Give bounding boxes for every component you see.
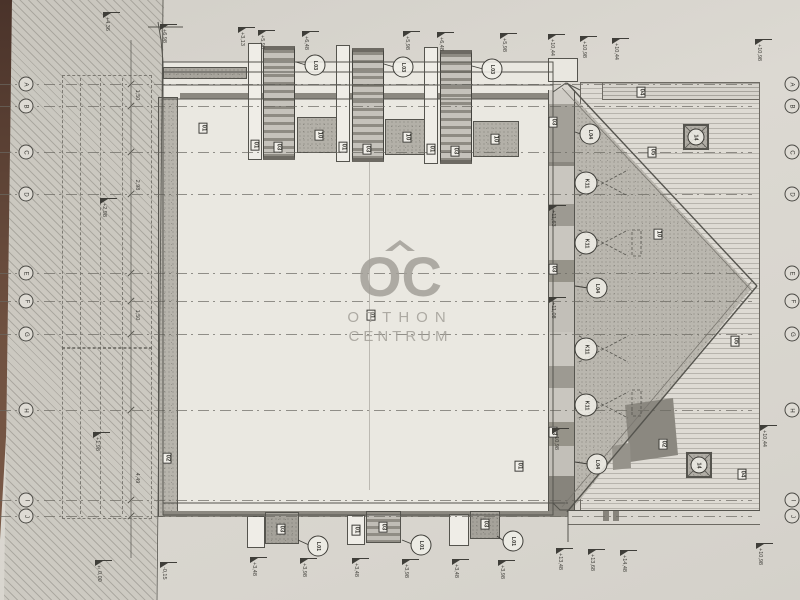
elevation-mark: +10,44 [612, 38, 630, 50]
grid-letter: H [23, 408, 29, 412]
tag-box-03: 03 [274, 142, 283, 153]
elevation-value: +10,98 [757, 548, 763, 565]
tag-box-01: 01 [515, 461, 524, 472]
grid-letter: B [23, 104, 29, 108]
elevation-value: +3,48 [353, 563, 359, 577]
tag-box-10: 10 [491, 134, 500, 145]
grid-bubble: B [785, 99, 800, 114]
tag-box-05: 05 [648, 147, 657, 158]
tag-box-01: 01 [251, 140, 260, 151]
elevation-mark: +11,08 [549, 297, 567, 309]
elevation-mark: +10,98 [756, 543, 774, 555]
tag-box-10: 10 [403, 132, 412, 143]
grid-letter: J [23, 515, 29, 518]
elevation-value: +6,48 [303, 36, 309, 50]
grid-letter: C [789, 150, 795, 154]
tag-circle-L04: L04 [580, 124, 601, 145]
elevation-value: +10,98 [553, 433, 559, 450]
elevation-mark: +4,36 [103, 12, 121, 24]
tag-box-01: 01 [199, 123, 208, 134]
elevation-value: +10,44 [549, 39, 555, 56]
grid-letter: H [789, 408, 795, 412]
tag-box-04: 04 [637, 87, 646, 98]
grid-bubble: E [785, 266, 800, 281]
tag-box-03: 03 [481, 519, 490, 530]
grid-bubble: H [19, 403, 34, 418]
grid-bubble: J [19, 509, 34, 524]
dim-text: 1,50 [134, 90, 140, 101]
elevation-mark: +3,48 [250, 557, 268, 569]
tag-circle-L01: L01 [503, 531, 524, 552]
elevation-mark: ±0,00 [95, 560, 113, 572]
tag-box-03: 03 [549, 264, 558, 275]
tag-text: L04 [594, 283, 600, 292]
grid-letter: B [789, 104, 795, 108]
elevation-value: +11,63 [550, 210, 556, 227]
elevation-value: +10,44 [761, 430, 767, 447]
tag-text: 14 [696, 462, 702, 468]
elevation-value: +5,98 [259, 35, 265, 49]
elevation-value: +11,08 [550, 302, 556, 319]
tag-box-10: 10 [654, 229, 663, 240]
tag-box-03: 03 [549, 117, 558, 128]
grid-bubble: I [19, 493, 34, 508]
tag-text: L03 [400, 62, 406, 71]
grid-letter: G [23, 332, 29, 337]
tag-box-02: 02 [163, 453, 172, 464]
tag-text: L01 [510, 536, 516, 545]
tag-box-01: 01 [339, 142, 348, 153]
floorplan-photo: AABBCCDDEEFFGGHHIIJJ01010310010310010310… [0, 0, 800, 600]
tag-box-03: 03 [363, 144, 372, 155]
tag-circle-14: 14 [688, 129, 705, 146]
tag-circle-L04: L04 [587, 278, 608, 299]
tag-box-01: 01 [427, 144, 436, 155]
grid-bubble: C [19, 145, 34, 160]
grid-letter: A [23, 82, 29, 86]
grid-bubble: H [785, 403, 800, 418]
grid-bubble: E [19, 266, 34, 281]
elevation-mark: +10,98 [580, 36, 598, 48]
elevation-value: +3,98 [301, 563, 307, 577]
elevation-mark: +3,98 [300, 558, 318, 570]
elevation-value: +10,98 [756, 44, 762, 61]
elevation-mark: +10,44 [760, 425, 778, 437]
tag-circle-K11: K11 [575, 338, 598, 361]
tag-text: L03 [312, 60, 318, 69]
elevation-value: +10,98 [581, 41, 587, 58]
elevation-value: +2,98 [101, 203, 107, 217]
elevation-value: +14,48 [621, 555, 627, 572]
elevation-value: +6,98 [161, 29, 167, 43]
elevation-mark: +6,48 [437, 32, 455, 44]
grid-bubble: B [19, 99, 34, 114]
elevation-mark: +10,98 [552, 428, 570, 440]
elevation-value: ±0,00 [96, 565, 102, 582]
tag-text: K11 [583, 178, 589, 188]
tag-text: 14 [693, 134, 699, 140]
grid-letter: I [23, 499, 29, 501]
grid-bubble: F [19, 294, 34, 309]
grid-bubble: G [785, 327, 800, 342]
tag-box-03: 03 [451, 146, 460, 157]
elevation-value: +4,36 [104, 17, 110, 31]
dim-text: 4,49 [134, 473, 140, 484]
elevation-mark: +1,98 [93, 432, 111, 444]
tag-circle-L03: L03 [393, 57, 414, 78]
grid-bubble: G [19, 327, 34, 342]
elevation-value: +13,48 [557, 553, 563, 570]
tag-box-01: 01 [352, 525, 361, 536]
elevation-value: +3,48 [453, 564, 459, 578]
grid-bubble: D [19, 187, 34, 202]
grid-bubble: A [785, 77, 800, 92]
tag-box-03: 03 [379, 522, 388, 533]
grid-bubble: D [785, 187, 800, 202]
tag-box-05: 05 [731, 336, 740, 347]
elevation-value: +5,98 [404, 36, 410, 50]
elevation-value: +3,13 [239, 32, 245, 46]
tag-text: L01 [418, 540, 424, 549]
dim-text: 2,98 [134, 180, 140, 191]
elevation-value: +13,68 [589, 554, 595, 571]
elevation-mark: +5,98 [403, 31, 421, 43]
grid-bubble: F [785, 294, 800, 309]
elevation-mark: +6,48 [302, 31, 320, 43]
grid-letter: A [789, 82, 795, 86]
grid-letter: F [23, 299, 29, 303]
tag-text: L01 [315, 541, 321, 550]
grid-letter: D [789, 192, 795, 196]
watermark-line2: CENTRUM [330, 328, 470, 345]
elevation-mark: +6,98 [160, 24, 178, 36]
grid-bubble: J [785, 509, 800, 524]
grid-letter: J [789, 515, 795, 518]
tag-circle-L03: L03 [482, 59, 503, 80]
elevation-value: +3,48 [251, 562, 257, 576]
elevation-mark: +3,98 [402, 559, 420, 571]
grid-letter: C [23, 150, 29, 154]
elevation-value: +5,98 [501, 38, 507, 52]
tag-circle-14: 14 [691, 457, 708, 474]
elevation-value: +3,98 [499, 565, 505, 579]
elevation-mark: +13,68 [588, 549, 606, 561]
tag-box-10: 10 [315, 130, 324, 141]
tag-box-02: 02 [659, 439, 668, 450]
elevation-mark: +3,98 [498, 560, 516, 572]
tag-text: L04 [587, 129, 593, 138]
elevation-mark: +10,44 [548, 34, 566, 46]
grid-bubble: C [785, 145, 800, 160]
tag-circle-K11: K11 [575, 394, 598, 417]
tag-box-04: 04 [738, 469, 747, 480]
elevation-mark: +10,98 [755, 39, 773, 51]
elevation-value: +1,98 [94, 437, 100, 451]
elevation-value: +3,98 [403, 564, 409, 578]
dim-text: 1,50 [134, 310, 140, 321]
tag-text: K11 [583, 344, 589, 354]
elevation-mark: +3,13 [238, 27, 256, 39]
tag-box-03: 03 [277, 524, 286, 535]
elevation-mark: +2,98 [100, 198, 118, 210]
elevation-mark: +5,98 [500, 33, 518, 45]
tag-circle-L03: L03 [305, 55, 326, 76]
grid-bubble: I [785, 493, 800, 508]
elevation-mark: +14,48 [620, 550, 638, 562]
elevation-value: +10,44 [613, 43, 619, 60]
elevation-mark: -0,15 [160, 562, 178, 574]
grid-letter: G [789, 332, 795, 337]
grid-letter: F [789, 299, 795, 303]
tag-circle-L01: L01 [411, 535, 432, 556]
grid-letter: D [23, 192, 29, 196]
watermark-logo: OC [330, 251, 470, 303]
tag-text: L03 [489, 64, 495, 73]
tag-circle-L04: L04 [587, 454, 608, 475]
elevation-value: +6,48 [438, 37, 444, 51]
tag-text: K11 [583, 238, 589, 248]
elevation-mark: +3,48 [352, 558, 370, 570]
grid-letter: E [789, 271, 795, 275]
grid-letter: I [789, 499, 795, 501]
tag-text: L04 [594, 459, 600, 468]
elevation-value: -0,15 [161, 567, 167, 580]
elevation-mark: +13,48 [556, 548, 574, 560]
elevation-mark: +3,48 [452, 559, 470, 571]
tag-circle-K11: K11 [575, 232, 598, 255]
tag-circle-L01: L01 [308, 536, 329, 557]
tag-circle-K11: K11 [575, 172, 598, 195]
watermark: OC OTTHON CENTRUM [330, 240, 470, 345]
elevation-mark: +11,63 [549, 205, 567, 217]
grid-letter: E [23, 271, 29, 275]
watermark-line1: OTTHON [330, 309, 470, 326]
elevation-mark: +5,98 [258, 30, 276, 42]
grid-bubble: A [19, 77, 34, 92]
tag-text: K11 [583, 400, 589, 410]
